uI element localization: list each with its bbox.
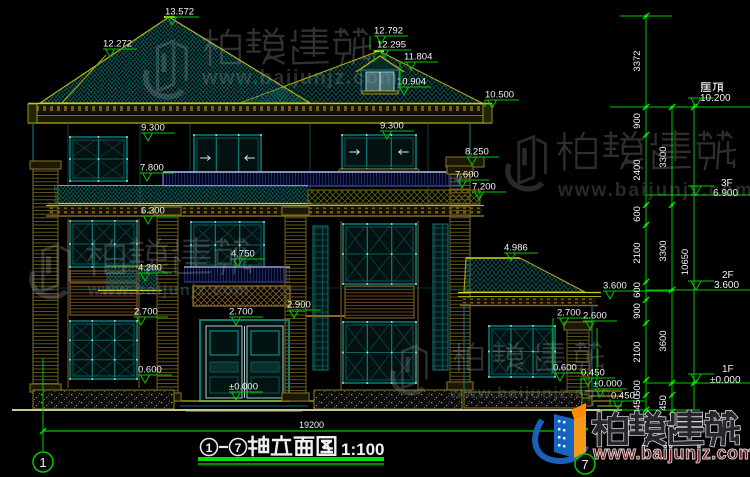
svg-text:8.250: 8.250 — [465, 147, 489, 158]
svg-text:450: 450 — [632, 394, 643, 410]
svg-text:0.600: 0.600 — [138, 365, 162, 376]
svg-text:www.baijunjz.com: www.baijunjz.com — [592, 443, 750, 463]
svg-text:1F: 1F — [722, 364, 734, 375]
svg-text:2.700: 2.700 — [557, 308, 581, 319]
svg-text:www.baijunjz.com: www.baijunjz.com — [87, 282, 250, 299]
svg-text:3.600: 3.600 — [714, 280, 739, 291]
svg-text:10650: 10650 — [680, 249, 691, 275]
svg-text:1: 1 — [206, 441, 213, 455]
svg-text:7.800: 7.800 — [140, 163, 164, 174]
svg-text:2.700: 2.700 — [229, 307, 253, 318]
svg-text:7: 7 — [581, 457, 588, 472]
svg-text:7.600: 7.600 — [455, 170, 479, 181]
svg-text:www.baijunjz.com: www.baijunjz.com — [449, 385, 612, 402]
svg-text:4.986: 4.986 — [504, 243, 528, 254]
svg-text:0.600: 0.600 — [553, 363, 577, 374]
svg-text:10.500: 10.500 — [485, 90, 514, 101]
svg-text:13.572: 13.572 — [165, 7, 194, 18]
svg-text:3600: 3600 — [658, 330, 669, 351]
svg-text:www.baijunjz.com: www.baijunjz.com — [557, 180, 750, 201]
svg-text:10.904: 10.904 — [397, 77, 426, 88]
svg-text:7: 7 — [235, 441, 242, 455]
svg-text:12.295: 12.295 — [377, 40, 406, 51]
svg-text:11.804: 11.804 — [404, 52, 432, 63]
svg-text:1: 1 — [39, 455, 46, 470]
svg-text:9.300: 9.300 — [141, 123, 165, 134]
svg-text:2100: 2100 — [632, 242, 643, 263]
svg-text:±0.000: ±0.000 — [710, 375, 741, 386]
svg-text:2.900: 2.900 — [287, 300, 311, 311]
svg-text:2.600: 2.600 — [583, 311, 607, 322]
svg-text:2.700: 2.700 — [134, 307, 158, 318]
svg-text:1:100: 1:100 — [341, 440, 384, 459]
svg-text:600: 600 — [632, 380, 643, 396]
svg-text:10.200: 10.200 — [700, 93, 731, 104]
svg-text:2100: 2100 — [632, 341, 643, 362]
svg-text:900: 900 — [632, 113, 643, 129]
svg-text:7.200: 7.200 — [472, 182, 496, 193]
svg-text:19200: 19200 — [299, 420, 324, 430]
svg-text:±0.000: ±0.000 — [229, 382, 258, 393]
svg-text:6.300: 6.300 — [141, 206, 165, 217]
svg-text:9.300: 9.300 — [380, 121, 404, 132]
svg-text:600: 600 — [632, 282, 643, 298]
svg-text:12.792: 12.792 — [374, 26, 403, 37]
svg-text:3300: 3300 — [658, 240, 669, 261]
svg-text:0.450: 0.450 — [581, 368, 605, 379]
svg-text:450: 450 — [658, 395, 669, 411]
svg-text:600: 600 — [632, 206, 643, 222]
svg-text:3372: 3372 — [632, 50, 643, 71]
svg-text:900: 900 — [632, 303, 643, 319]
svg-text:3.600: 3.600 — [603, 281, 627, 292]
svg-text:www.baijunjz.com: www.baijunjz.com — [201, 67, 399, 89]
svg-text:12.272: 12.272 — [103, 39, 132, 50]
